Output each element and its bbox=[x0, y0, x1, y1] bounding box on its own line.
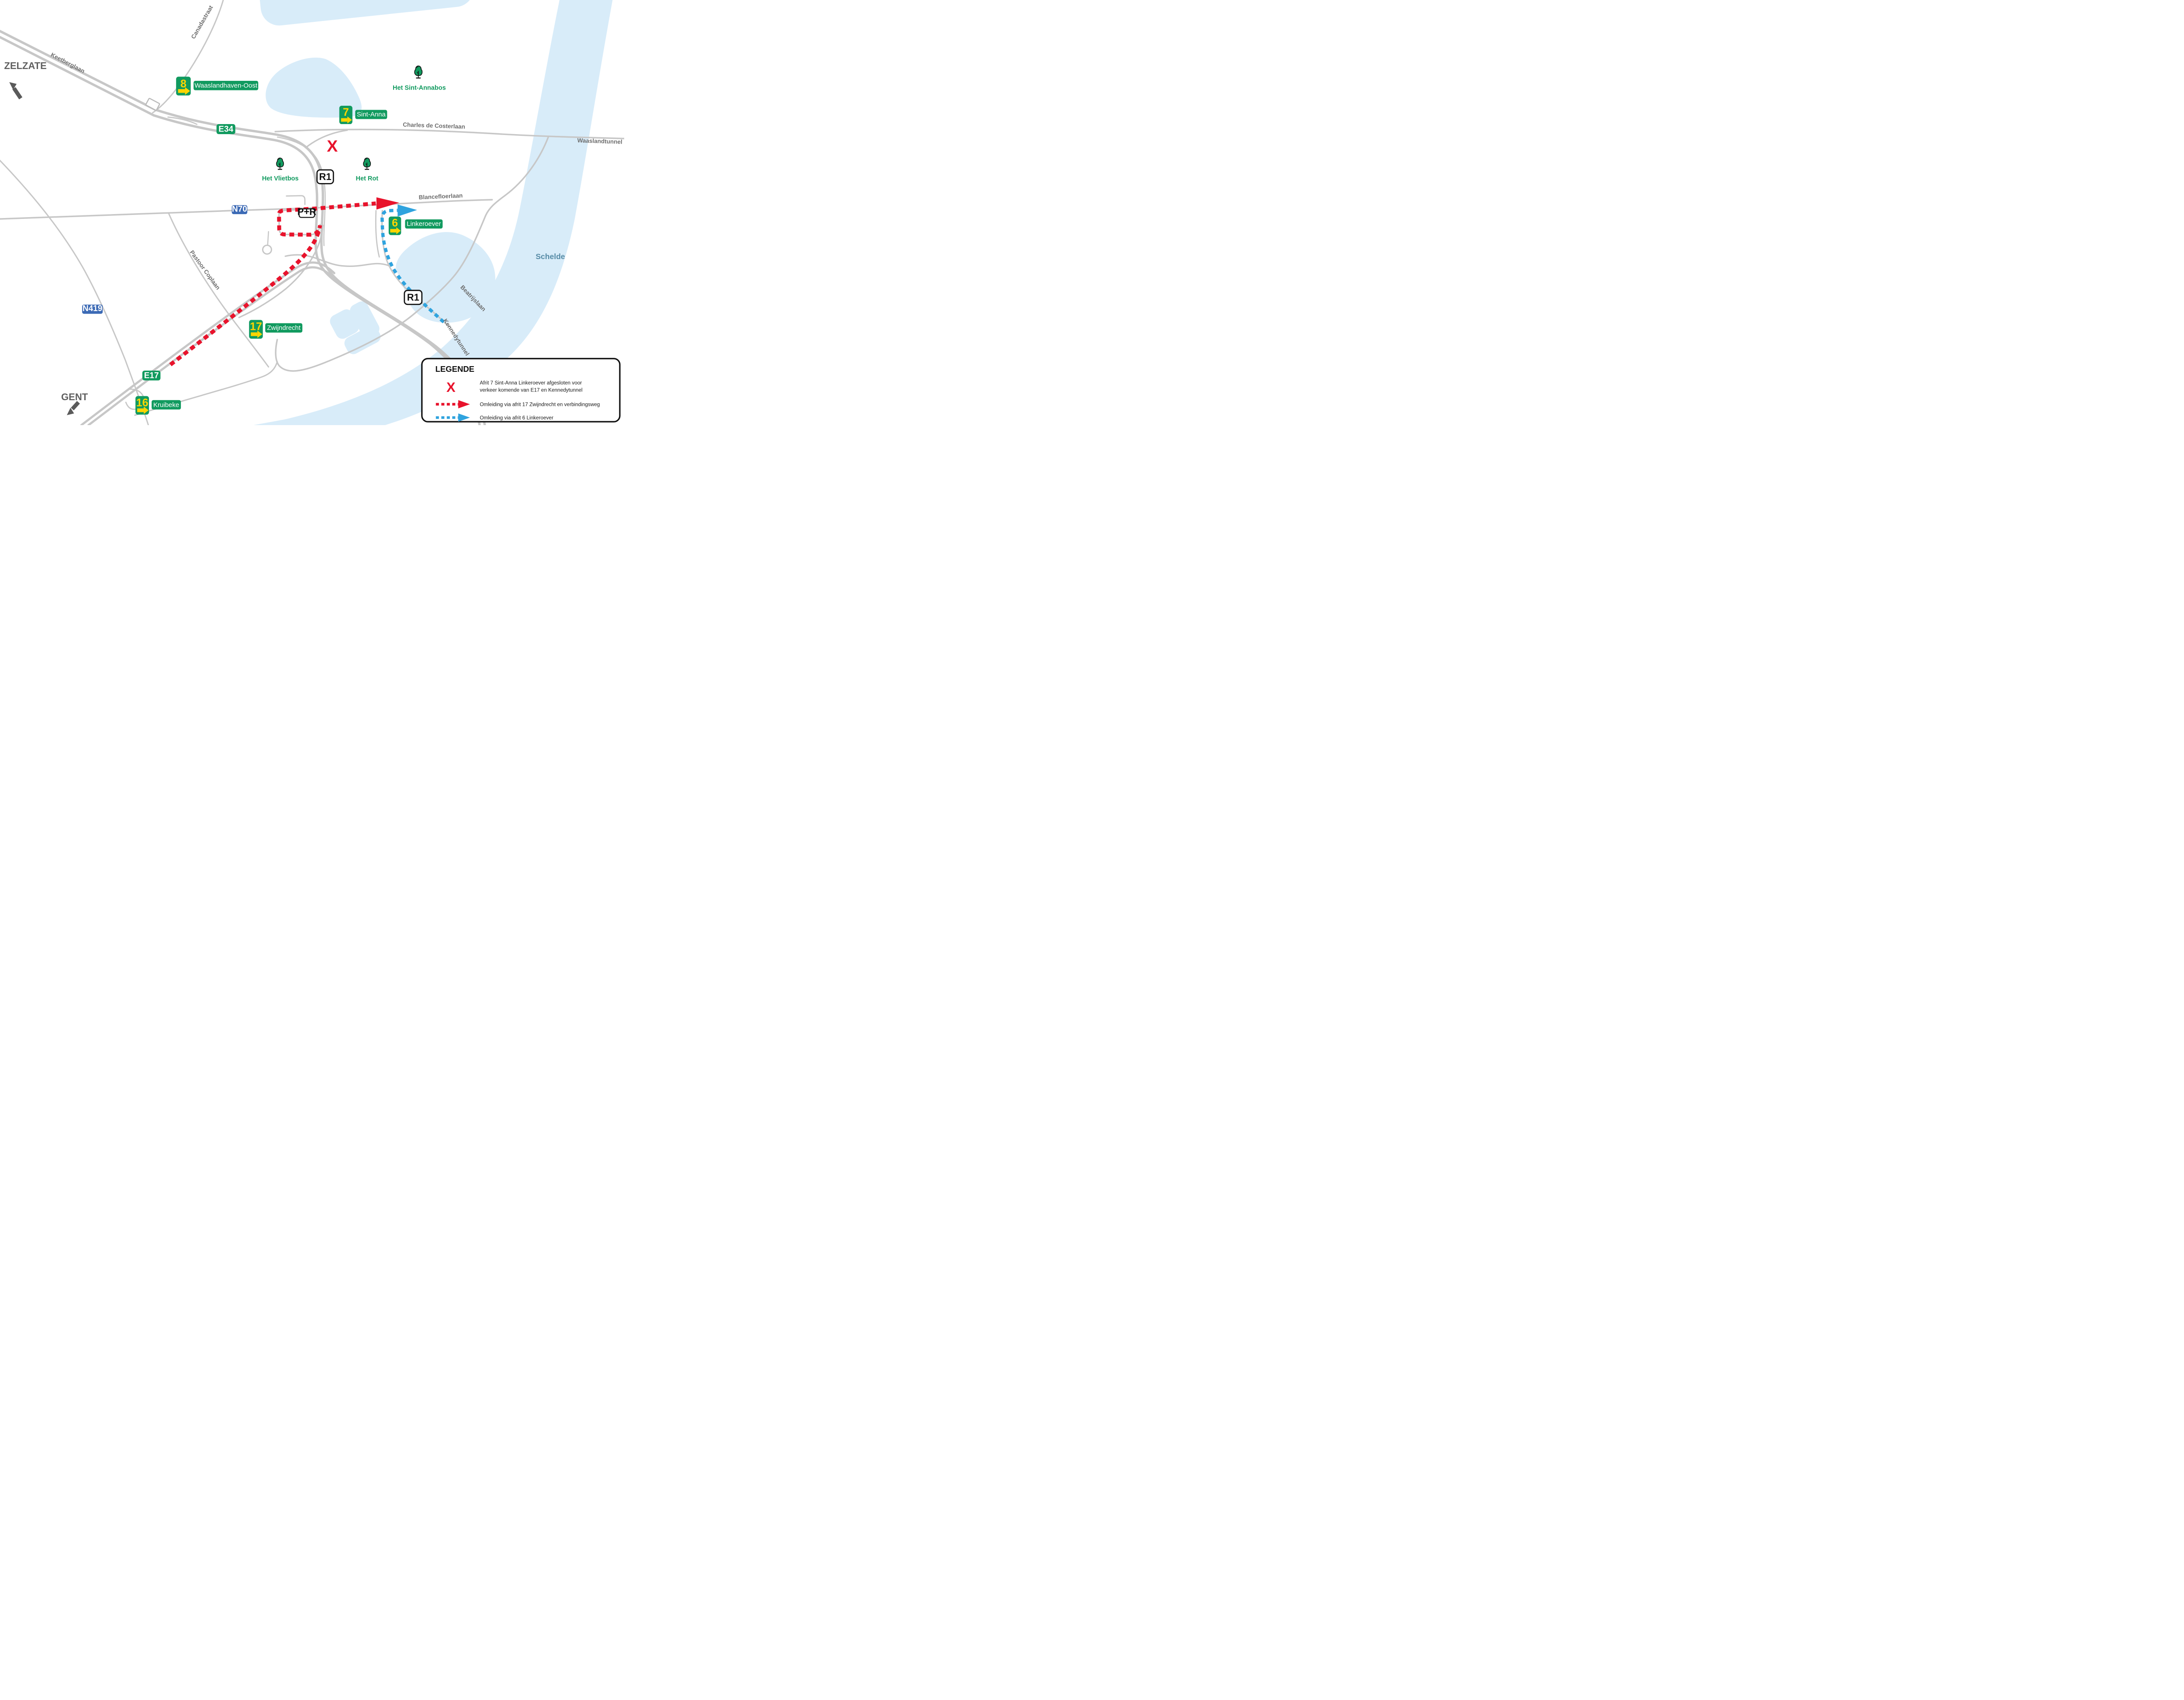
forest-label-vlietbos: Het Vlietbos bbox=[262, 175, 299, 182]
street-label-charles-de-costerlaan: Charles de Costerlaan bbox=[403, 121, 465, 130]
blue-route-arrowhead bbox=[397, 204, 417, 217]
e17-shield-label: E17 bbox=[144, 371, 159, 380]
direction-label-gent: GENT bbox=[61, 391, 88, 402]
svg-text:16: 16 bbox=[136, 397, 149, 409]
svg-text:7: 7 bbox=[343, 106, 349, 118]
road-pastoor-coplaan bbox=[169, 213, 269, 367]
detour-map: X Het Sint-Annabos Het Vlietbos Het Rot … bbox=[0, 0, 624, 425]
legend-closed-text-line1: Afrit 7 Sint-Anna Linkeroever afgesloten… bbox=[480, 380, 582, 386]
street-label-blancefloerlaan: Blancefloerlaan bbox=[418, 192, 463, 201]
gent-arrow-icon bbox=[67, 402, 79, 415]
legend-closed-x-icon: X bbox=[446, 380, 456, 395]
roundabout-stub bbox=[268, 232, 269, 245]
legend-blue-text: Omleiding via afrit 6 Linkeroever bbox=[480, 415, 553, 421]
svg-text:6: 6 bbox=[392, 217, 398, 229]
exit-sign-6: 6 Linkeroever bbox=[389, 217, 443, 235]
tree-icon bbox=[276, 158, 283, 169]
north-water-area bbox=[253, 0, 476, 28]
legend-title: LEGENDE bbox=[435, 364, 474, 374]
ramp-sint-anna-exit bbox=[306, 130, 347, 148]
n70-shield-label: N70 bbox=[232, 205, 247, 214]
e34-shield-label: E34 bbox=[218, 125, 233, 134]
n419-shield-label: N419 bbox=[83, 304, 102, 313]
zelzate-arrow-icon bbox=[9, 82, 21, 98]
forest-label-sint-annabos: Het Sint-Annabos bbox=[393, 85, 446, 92]
direction-labels: ZELZATE GENT bbox=[4, 60, 88, 415]
closure-x-icon: X bbox=[327, 137, 338, 155]
svg-text:Zwijndrecht: Zwijndrecht bbox=[267, 324, 301, 332]
ramp-n419-loop-2 bbox=[126, 402, 137, 409]
r1-badge-north-label: R1 bbox=[319, 171, 331, 182]
svg-text:17: 17 bbox=[250, 321, 262, 333]
pr-badge-label: P+R bbox=[297, 206, 317, 217]
legend: LEGENDE X Afrit 7 Sint-Anna Linkeroever … bbox=[422, 359, 620, 422]
red-route-arrowhead bbox=[377, 197, 399, 210]
direction-label-zelzate: ZELZATE bbox=[4, 60, 47, 71]
svg-text:Linkeroever: Linkeroever bbox=[407, 220, 441, 228]
exit-sign-16: 16 Kruibeke bbox=[135, 396, 181, 415]
exit-signs: 8 Waaslandhaven-Oost 7 Sint-Anna 6 bbox=[135, 77, 442, 415]
legend-closed-text-line2: verkeer komende van E17 en Kennedytunnel bbox=[480, 387, 582, 393]
roundabout-icon bbox=[263, 245, 271, 254]
water-label-schelde: Schelde bbox=[536, 252, 565, 261]
forest-label-rot: Het Rot bbox=[356, 175, 379, 182]
tree-icon bbox=[415, 66, 422, 78]
exit-sign-8: 8 Waaslandhaven-Oost bbox=[176, 77, 258, 96]
exit-sign-17: 17 Zwijndrecht bbox=[249, 320, 302, 339]
road-canadastraat bbox=[153, 0, 225, 113]
street-label-pastoor-coplaan: Pastoor Coplaan bbox=[189, 249, 221, 291]
tree-icon bbox=[363, 158, 370, 169]
svg-text:Sint-Anna: Sint-Anna bbox=[357, 111, 386, 118]
highway-e34-r1-kennedytunnel-b bbox=[0, 35, 480, 425]
svg-text:Kruibeke: Kruibeke bbox=[153, 401, 179, 409]
street-label-canadastraat: Canadastraat bbox=[190, 4, 214, 40]
road-n419 bbox=[0, 157, 149, 425]
bridge-icon bbox=[145, 98, 160, 111]
highway-e17-b bbox=[89, 267, 335, 425]
r1-badge-south-label: R1 bbox=[407, 292, 419, 303]
legend-red-text: Omleiding via afrit 17 Zwijndrecht en ve… bbox=[480, 402, 600, 407]
svg-text:Waaslandhaven-Oost: Waaslandhaven-Oost bbox=[194, 82, 258, 90]
exit-sign-7: 7 Sint-Anna bbox=[339, 106, 387, 124]
map-canvas: X Het Sint-Annabos Het Vlietbos Het Rot … bbox=[0, 0, 624, 425]
road-pr-inner bbox=[287, 196, 305, 204]
road-linkeroever-local bbox=[376, 211, 379, 257]
